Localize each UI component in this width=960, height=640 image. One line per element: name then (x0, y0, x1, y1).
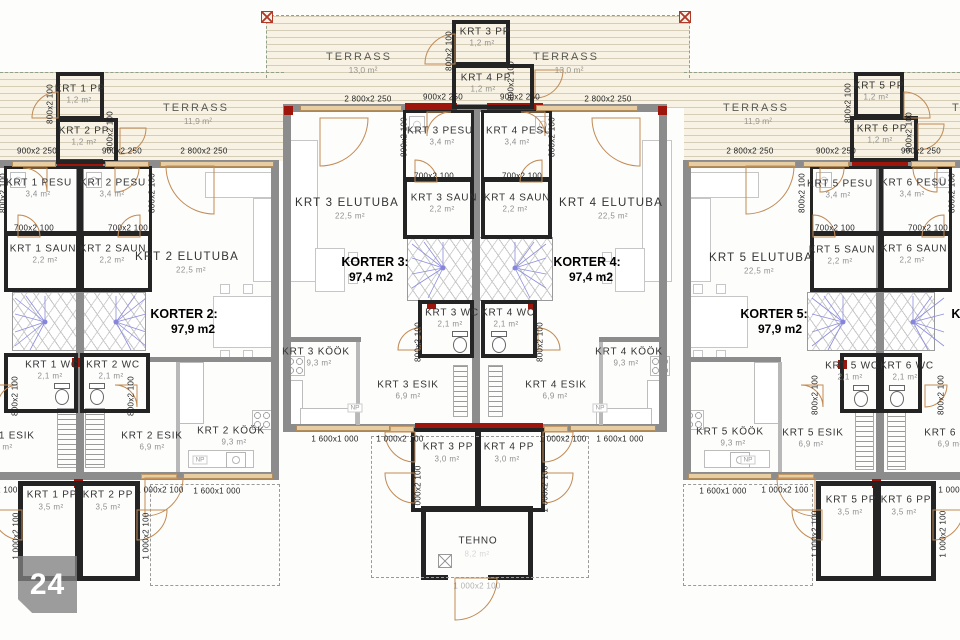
room-area: 3,4 m² (25, 190, 50, 199)
dimension-label: 800x2 100 (414, 322, 423, 362)
survey-marker (679, 11, 691, 23)
dimension-label: 800x2 100 (46, 84, 55, 124)
room-label: TEHNO (459, 536, 498, 547)
staircase (807, 292, 935, 351)
sofa (288, 140, 318, 282)
dimension-label: 700x2 100 (815, 224, 855, 233)
room-label: KRT 2 PESU (80, 178, 146, 189)
apartment-area: 97,9 m2 (171, 322, 215, 336)
stair-flight (453, 365, 468, 417)
room-area: 3,0 m² (434, 455, 459, 464)
room-label: KRT 6 ESIK (924, 428, 960, 439)
terrace-area: 13,0 m² (555, 65, 584, 75)
window (183, 473, 273, 479)
kitchen-counter (754, 362, 780, 424)
stair-flight (57, 408, 77, 468)
wall (176, 362, 180, 472)
dimension-label: 800x2 100 (507, 61, 516, 101)
room-area: 8,2 m² (464, 550, 489, 559)
room-area: 9,3 m² (306, 359, 331, 368)
window (12, 161, 56, 167)
room-area: 9,3 m² (720, 439, 745, 448)
dimension-label: 1 000x2 100 (811, 510, 820, 557)
room-label: KRT 6 PESU (881, 178, 947, 189)
terrace-boundary (266, 16, 267, 78)
chair (243, 284, 253, 294)
dimension-label: 2 800x2 250 (584, 95, 631, 104)
room-area: 3,4 m² (899, 190, 924, 199)
room-area: 2,1 m² (892, 373, 917, 382)
room-area: 2,1 m² (493, 320, 518, 329)
room-label: KRT 2 ELUTUBA (135, 251, 239, 263)
room-label: KRT 3 WC (425, 308, 479, 319)
window (536, 105, 638, 111)
wall (778, 362, 782, 472)
dimension-label: 900x2 250 (816, 147, 856, 156)
dimension-label: 800x2 100 (844, 83, 853, 123)
room-area: 6,9 m² (798, 440, 823, 449)
dimension-label: 700x2 100 (108, 224, 148, 233)
room-area: 3,4 m² (99, 190, 124, 199)
dimension-label: 1 600x1 000 (596, 435, 643, 444)
dimension-label: 700x2 100 (502, 172, 542, 181)
watermark-number: 24 (30, 568, 65, 602)
np-tag: NP (192, 456, 207, 465)
wall (683, 357, 781, 362)
room-area: 22,5 m² (335, 212, 365, 221)
wall (659, 104, 667, 432)
room-label: KRT 3 PP (460, 27, 511, 38)
room-label: KRT 2 PP (83, 490, 134, 501)
dimension-label: 1 600x1 000 (193, 487, 240, 496)
room-label: KRT 5 PP (854, 81, 905, 92)
room-label: KRT 3 KÖÖK (282, 347, 350, 358)
wall (683, 160, 691, 480)
sofa (205, 172, 279, 198)
np-tag: NP (592, 404, 607, 413)
stair-flight (887, 410, 906, 470)
watermark-badge: 24 (18, 556, 77, 613)
window (296, 425, 390, 431)
terrace-label: TERRASS (326, 51, 392, 63)
room-area: 3,0 m² (494, 455, 519, 464)
terrace-label: TERRASS (163, 102, 229, 114)
dimension-label: 800x2 100 (127, 376, 136, 416)
window (300, 105, 402, 111)
dimension-label: 1 600x1 000 (311, 435, 358, 444)
room-label: KRT 4 WC (481, 308, 535, 319)
room-label: KRT 6 WC (880, 361, 934, 372)
dimension-label: 1 000x2 100 (12, 512, 21, 559)
dimension-label: 800x2 100 (11, 376, 20, 416)
window (688, 473, 772, 479)
room-area: 3,4 m² (504, 138, 529, 147)
dimension-label: 800x2 100 (948, 173, 957, 213)
terrace-area: 13,0 m² (349, 65, 378, 75)
dimension-label: 1 000x2 100 (453, 582, 500, 591)
room-area: 1,2 m² (71, 138, 96, 147)
dimension-label: 800x2 100 (400, 117, 409, 157)
room-label: KRT 1 PP (55, 84, 106, 95)
dimension-label: 800x2 100 (548, 117, 557, 157)
room-area: 2,1 m² (437, 320, 462, 329)
window (105, 161, 149, 167)
apartment-title: KORTER 5: (740, 307, 807, 321)
terrace-boundary (0, 72, 284, 73)
room-label: KRT 5 ELUTUBA (709, 252, 813, 264)
red-wall (658, 106, 667, 115)
room-area: 2,2 m² (32, 256, 57, 265)
room-label: KRT 2 PP (59, 126, 110, 137)
room-label: KRT 4 PP (484, 442, 535, 453)
dimension-label: 900x2 250 (17, 147, 57, 156)
room-label: KRT 6 SAUN (881, 244, 948, 255)
apartment-title: KORTER 4: (553, 255, 620, 269)
apartment-area: 97,4 m2 (569, 270, 613, 284)
chair (693, 284, 703, 294)
room-label: KRT 5 SAUN (809, 245, 876, 256)
room-label: KRT 5 KÖÖK (696, 427, 764, 438)
room-area: 1,2 m² (469, 39, 494, 48)
dimension-label: 1 000x2 100 (414, 465, 423, 512)
room-label: KRT 1 SAUN (10, 244, 77, 255)
door (544, 426, 568, 432)
room-label: KRT 3 SAUN (411, 193, 478, 204)
dimension-label: 800x2 100 (0, 173, 8, 213)
room-label: KRT 1 PP (27, 490, 78, 501)
survey-marker (261, 11, 273, 23)
room-area: 6,9 m² (542, 392, 567, 401)
room-label: KRT 4 ESIK (525, 380, 587, 391)
dimension-label: 800x2 100 (905, 112, 914, 152)
dining-table (686, 296, 748, 348)
room-area: 22,5 m² (176, 266, 206, 275)
room-label: KRT 2 WC (86, 360, 140, 371)
room-area: 6,9 m² (0, 443, 13, 452)
dimension-label: 800x2 100 (148, 173, 157, 213)
window (570, 425, 656, 431)
terrace-area: 11,9 m² (184, 116, 212, 126)
dimension-label: 1 000x2 100 (539, 435, 586, 444)
dimension-label: 700x2 100 (414, 172, 454, 181)
dimension-label: 900x2 250 (423, 93, 463, 102)
room-area: 1,2 m² (867, 136, 892, 145)
apartment-area: 97,9 m2 (758, 322, 802, 336)
terrace-label: TERRASS (723, 102, 789, 114)
room-area: 2,1 m² (37, 372, 62, 381)
floor-plan: TERRASS 11,9 m² TERRASS 13,0 m² TERRASS … (0, 0, 960, 640)
stair-flight (85, 408, 105, 468)
sofa (685, 172, 759, 198)
dining-table (213, 296, 275, 348)
room-area: 3,5 m² (837, 508, 862, 517)
room-area: 2,2 m² (827, 257, 852, 266)
room-label: KRT 4 SAUN (484, 193, 551, 204)
dimension-label: 1 000x2 100 (0, 486, 18, 495)
room-label: KRT 4 PP (461, 73, 512, 84)
room-area: 2,1 m² (837, 373, 862, 382)
dimension-label: 800x2 100 (106, 111, 115, 151)
room-label: KRT 1 ESIK (0, 431, 35, 442)
dimension-label: 1 000x2 100 (136, 486, 183, 495)
stair-flight (855, 410, 874, 470)
dimension-label: 800x2 100 (536, 322, 545, 362)
room-label: KRT 6 PP (857, 124, 908, 135)
terrace-area: 11,9 m² (744, 116, 772, 126)
room-area: 3,5 m² (95, 503, 120, 512)
np-tag: NP (740, 456, 755, 465)
wall (283, 337, 361, 342)
room-area: 1,2 m² (66, 96, 91, 105)
dimension-label: 1 000x2 100 (761, 486, 808, 495)
room-area: 2,2 m² (899, 256, 924, 265)
dimension-label: 800x2 100 (445, 31, 454, 71)
apartment-title: KORTER 2: (150, 307, 217, 321)
wall (599, 337, 667, 342)
dimension-label: 1 600x1 000 (699, 487, 746, 496)
dimension-label: 1 000x2 100 (938, 486, 960, 495)
dimension-label: 800x2 100 (811, 375, 820, 415)
window (160, 161, 274, 167)
chair (220, 284, 230, 294)
porch-outline (683, 484, 813, 586)
wall (271, 160, 279, 480)
room-area: 22,5 m² (598, 212, 628, 221)
dimension-label: 2 800x2 250 (180, 147, 227, 156)
apartment-title: KORTER 3: (341, 255, 408, 269)
dimension-label: 800x2 100 (798, 173, 807, 213)
room-area: 22,5 m² (744, 267, 774, 276)
room-label: KRT 3 PP (423, 442, 474, 453)
room-label: KRT 1 WC (25, 360, 79, 371)
room-label: KRT 6 PP (881, 495, 932, 506)
room-label: KRT 1 PESU (6, 178, 72, 189)
room-label: KRT 5 ESIK (782, 428, 844, 439)
room-area: 2,1 m² (98, 372, 123, 381)
porch-outline (150, 484, 280, 586)
room-area: 6,9 m² (937, 440, 960, 449)
dimension-label: 1 000x2 100 (939, 510, 948, 557)
room-area: 9,3 m² (221, 438, 246, 447)
room-label: KRT 5 PP (826, 495, 877, 506)
terrace-label: TERRASS (533, 51, 599, 63)
terrace-boundary (266, 15, 690, 16)
room-area: 3,4 m² (825, 191, 850, 200)
terrace-boundary (689, 16, 690, 78)
dimension-label: 700x2 100 (14, 224, 54, 233)
dimension-label: 1 000x2 100 (142, 512, 151, 559)
wall (356, 342, 360, 430)
dimension-label: 700x2 100 (908, 224, 948, 233)
dimension-label: 800x2 100 (937, 375, 946, 415)
apartment-area: 97,4 m2 (349, 270, 393, 284)
stair-flight (488, 365, 503, 417)
room-area: 1,2 m² (863, 93, 888, 102)
sofa (642, 140, 672, 282)
dimension-label: 2 800x2 250 (344, 95, 391, 104)
room-area: 3,5 m² (38, 503, 63, 512)
sink-icon (226, 452, 246, 468)
room-area: 3,4 m² (429, 138, 454, 147)
room-area: 6,9 m² (395, 392, 420, 401)
window (688, 161, 796, 167)
dimension-label: 1 000x2 100 (541, 465, 550, 512)
wall (283, 104, 291, 432)
room-area: 1,2 m² (470, 85, 495, 94)
room-label: KRT 3 ESIK (377, 380, 439, 391)
terrace-label: TERRASS (952, 102, 960, 114)
door (390, 426, 414, 432)
room-area: 3,5 m² (891, 508, 916, 517)
red-wall (284, 106, 293, 115)
room-label: KRT 5 PESU (807, 179, 873, 190)
room-label: KRT 4 ELUTUBA (559, 197, 663, 209)
chair (716, 284, 726, 294)
staircase (407, 237, 553, 301)
window (803, 161, 849, 167)
room-area: 9,3 m² (613, 359, 638, 368)
window (911, 161, 956, 167)
wall (148, 357, 279, 362)
room-label: KRT 3 ELUTUBA (295, 197, 399, 209)
room-label: KRT 4 PESU (486, 126, 552, 137)
room-area: 2,2 m² (99, 256, 124, 265)
room-area: 6,9 m² (139, 443, 164, 452)
room-label: KRT 5 WC (825, 361, 879, 372)
terrace-boundary (684, 72, 960, 73)
room-area: 2,2 m² (429, 205, 454, 214)
room-label: KRT 2 KÖÖK (197, 426, 265, 437)
door (141, 474, 177, 479)
room-area: 2,2 m² (502, 205, 527, 214)
dimension-label: 1 000x2 100 (376, 435, 423, 444)
room-label: KRT 4 KÖÖK (595, 347, 663, 358)
np-tag: NP (347, 404, 362, 413)
door (778, 474, 814, 479)
kitchen-counter (178, 362, 204, 424)
apartment-title: KORTER 6: (951, 307, 960, 321)
dimension-label: 2 800x2 250 (726, 147, 773, 156)
room-label: KRT 2 ESIK (121, 431, 183, 442)
room-label: KRT 3 PESU (407, 126, 473, 137)
